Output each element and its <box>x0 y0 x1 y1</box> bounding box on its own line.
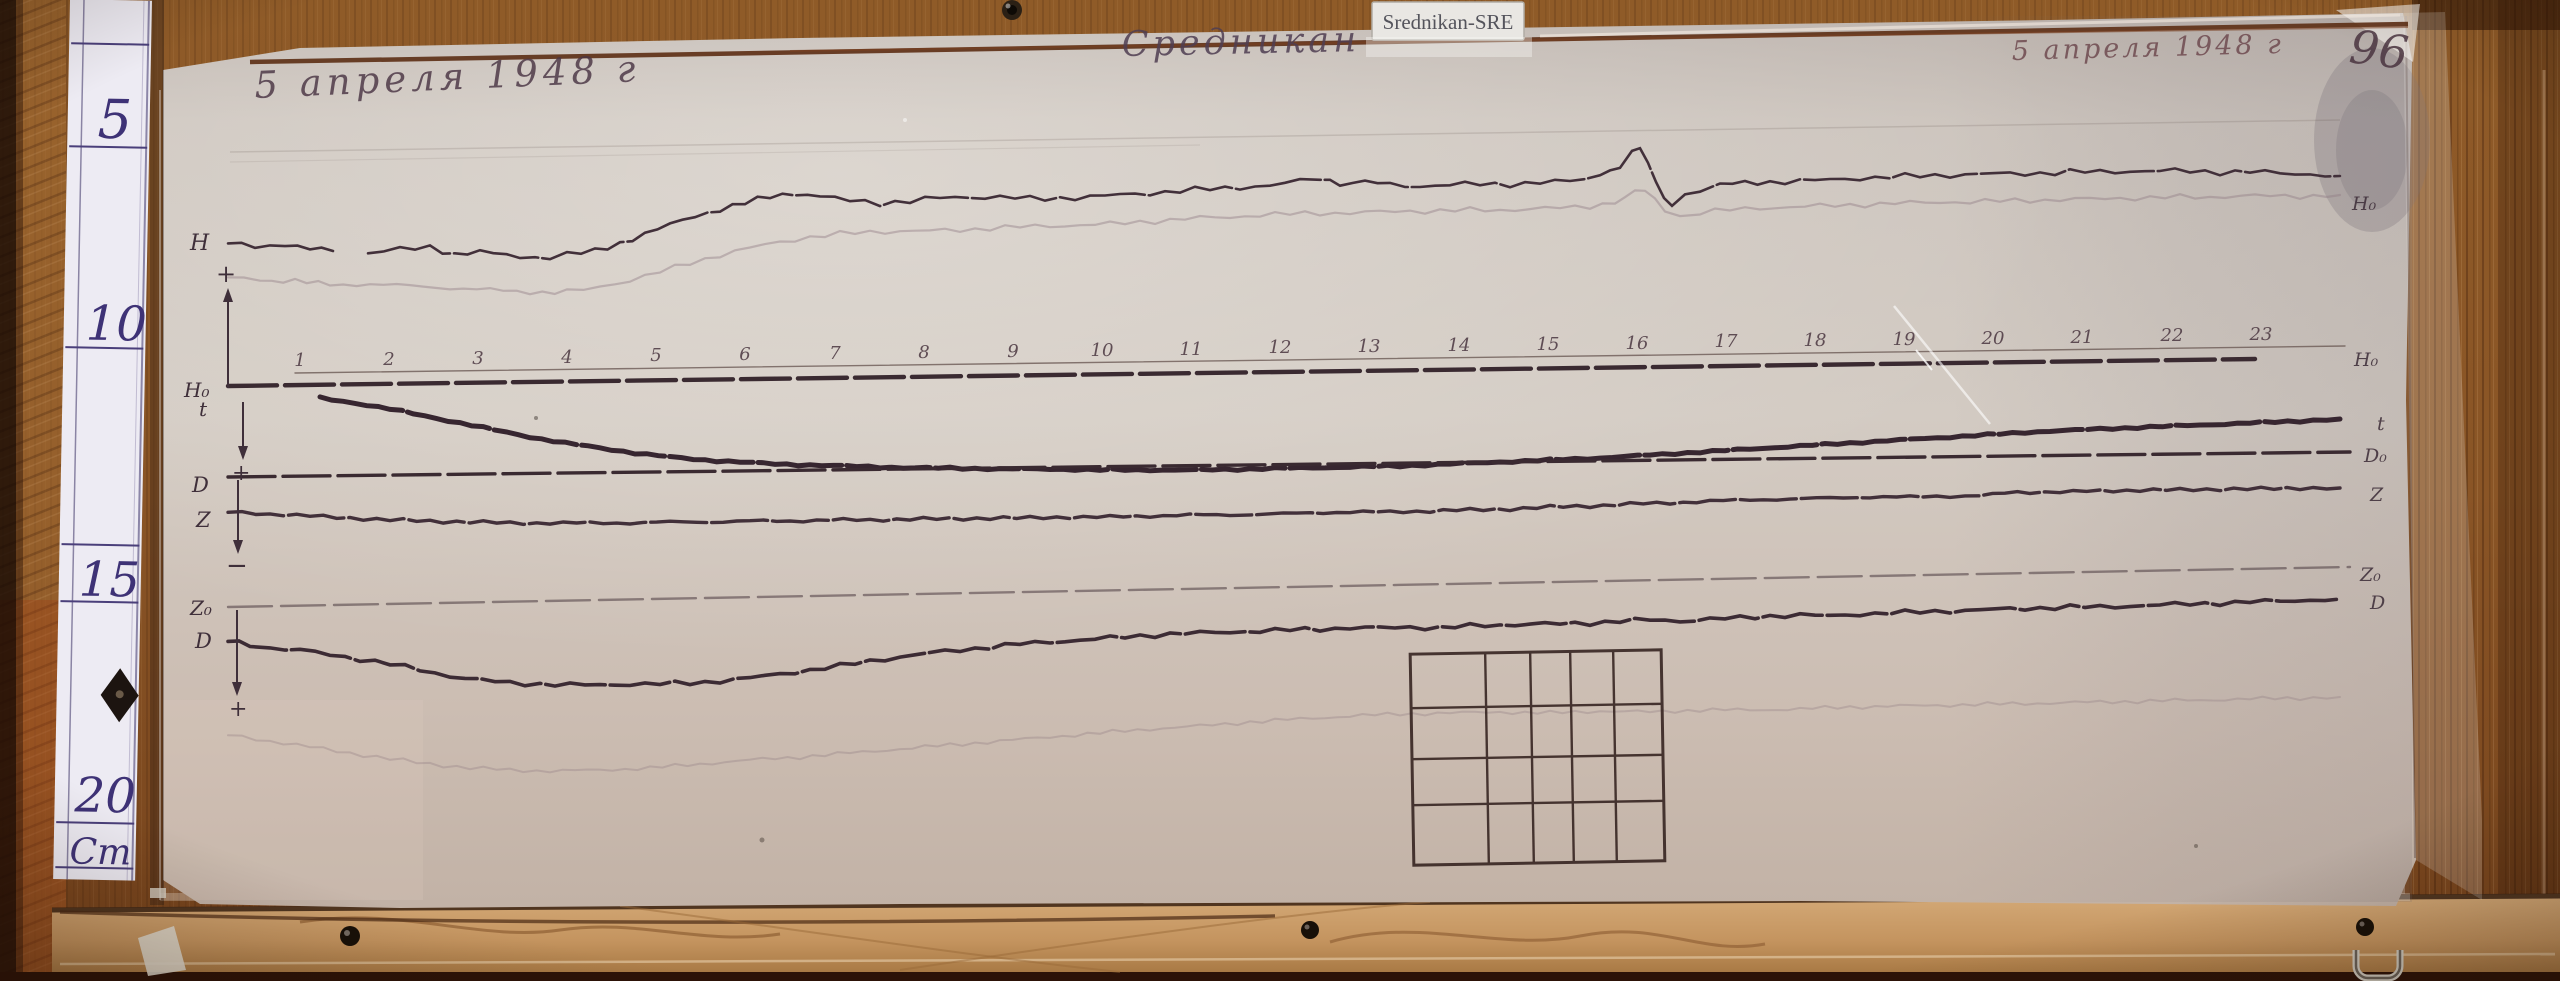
magnetogram-photo: 5 10 15 20 Cm 5 апреля 1948 г Средникан … <box>0 0 2560 981</box>
photo-canvas: 5 10 15 20 Cm 5 апреля 1948 г Средникан … <box>0 0 2560 981</box>
vignette <box>0 0 2560 981</box>
